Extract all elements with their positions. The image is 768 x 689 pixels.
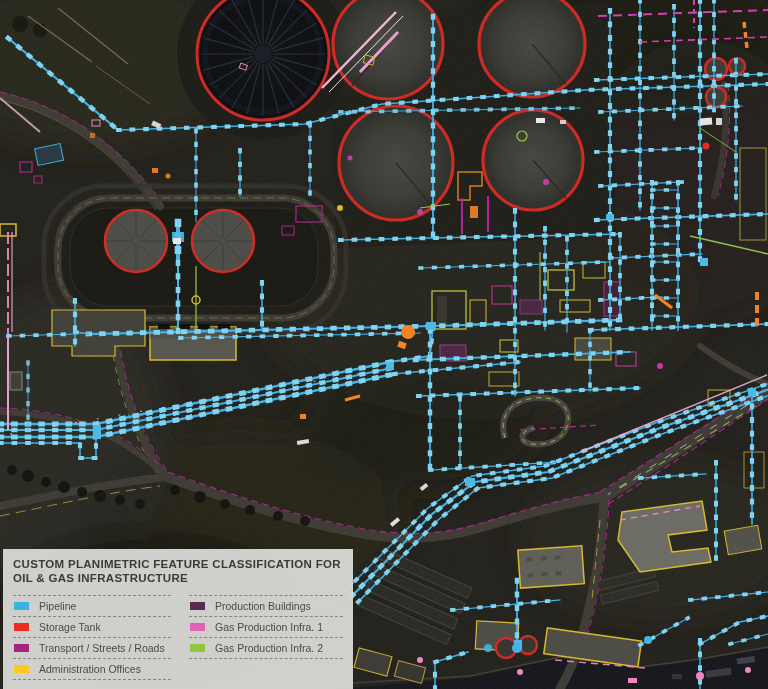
legend-item-gas-production-infra-2: Gas Production Infra. 2 bbox=[189, 637, 343, 659]
legend-item-label: Gas Production Infra. 1 bbox=[215, 621, 323, 633]
legend-item-label: Pipeline bbox=[39, 600, 76, 612]
legend-swatch-pipeline bbox=[14, 602, 29, 610]
legend-panel: CUSTOM PLANIMETRIC FEATURE CLASSIFICATIO… bbox=[3, 549, 353, 689]
legend-item-label: Gas Production Infra. 2 bbox=[215, 642, 323, 654]
legend-swatch-storage-tank bbox=[14, 623, 29, 631]
legend-title: CUSTOM PLANIMETRIC FEATURE CLASSIFICATIO… bbox=[13, 558, 343, 586]
legend-item-pipeline: Pipeline bbox=[13, 595, 171, 616]
legend-item-administration-offices: Administration Offices bbox=[13, 658, 171, 680]
legend-title-line2: OIL & GAS INFRASTRUCTURE bbox=[13, 572, 188, 584]
legend-item-label: Administration Offices bbox=[39, 663, 141, 675]
legend-column-left: Pipeline Storage Tank Transport / Street… bbox=[13, 595, 171, 680]
legend-item-transport: Transport / Streets / Roads bbox=[13, 637, 171, 658]
legend-item-storage-tank: Storage Tank bbox=[13, 616, 171, 637]
legend-item-production-buildings: Production Buildings bbox=[189, 595, 343, 616]
legend-swatch-production-buildings bbox=[190, 602, 205, 610]
legend-swatch-transport bbox=[14, 644, 29, 652]
planimetric-map-graphic: CUSTOM PLANIMETRIC FEATURE CLASSIFICATIO… bbox=[0, 0, 768, 689]
legend-columns: Pipeline Storage Tank Transport / Street… bbox=[13, 595, 343, 680]
legend-item-label: Storage Tank bbox=[39, 621, 101, 633]
legend-title-line1: CUSTOM PLANIMETRIC FEATURE CLASSIFICATIO… bbox=[13, 558, 341, 570]
legend-swatch-gas-production-infra-2 bbox=[190, 644, 205, 652]
legend-item-label: Transport / Streets / Roads bbox=[39, 642, 165, 654]
legend-item-label: Production Buildings bbox=[215, 600, 311, 612]
legend-column-right: Production Buildings Gas Production Infr… bbox=[189, 595, 343, 680]
legend-item-gas-production-infra-1: Gas Production Infra. 1 bbox=[189, 616, 343, 637]
legend-swatch-gas-production-infra-1 bbox=[190, 623, 205, 631]
legend-swatch-administration-offices bbox=[14, 665, 29, 673]
